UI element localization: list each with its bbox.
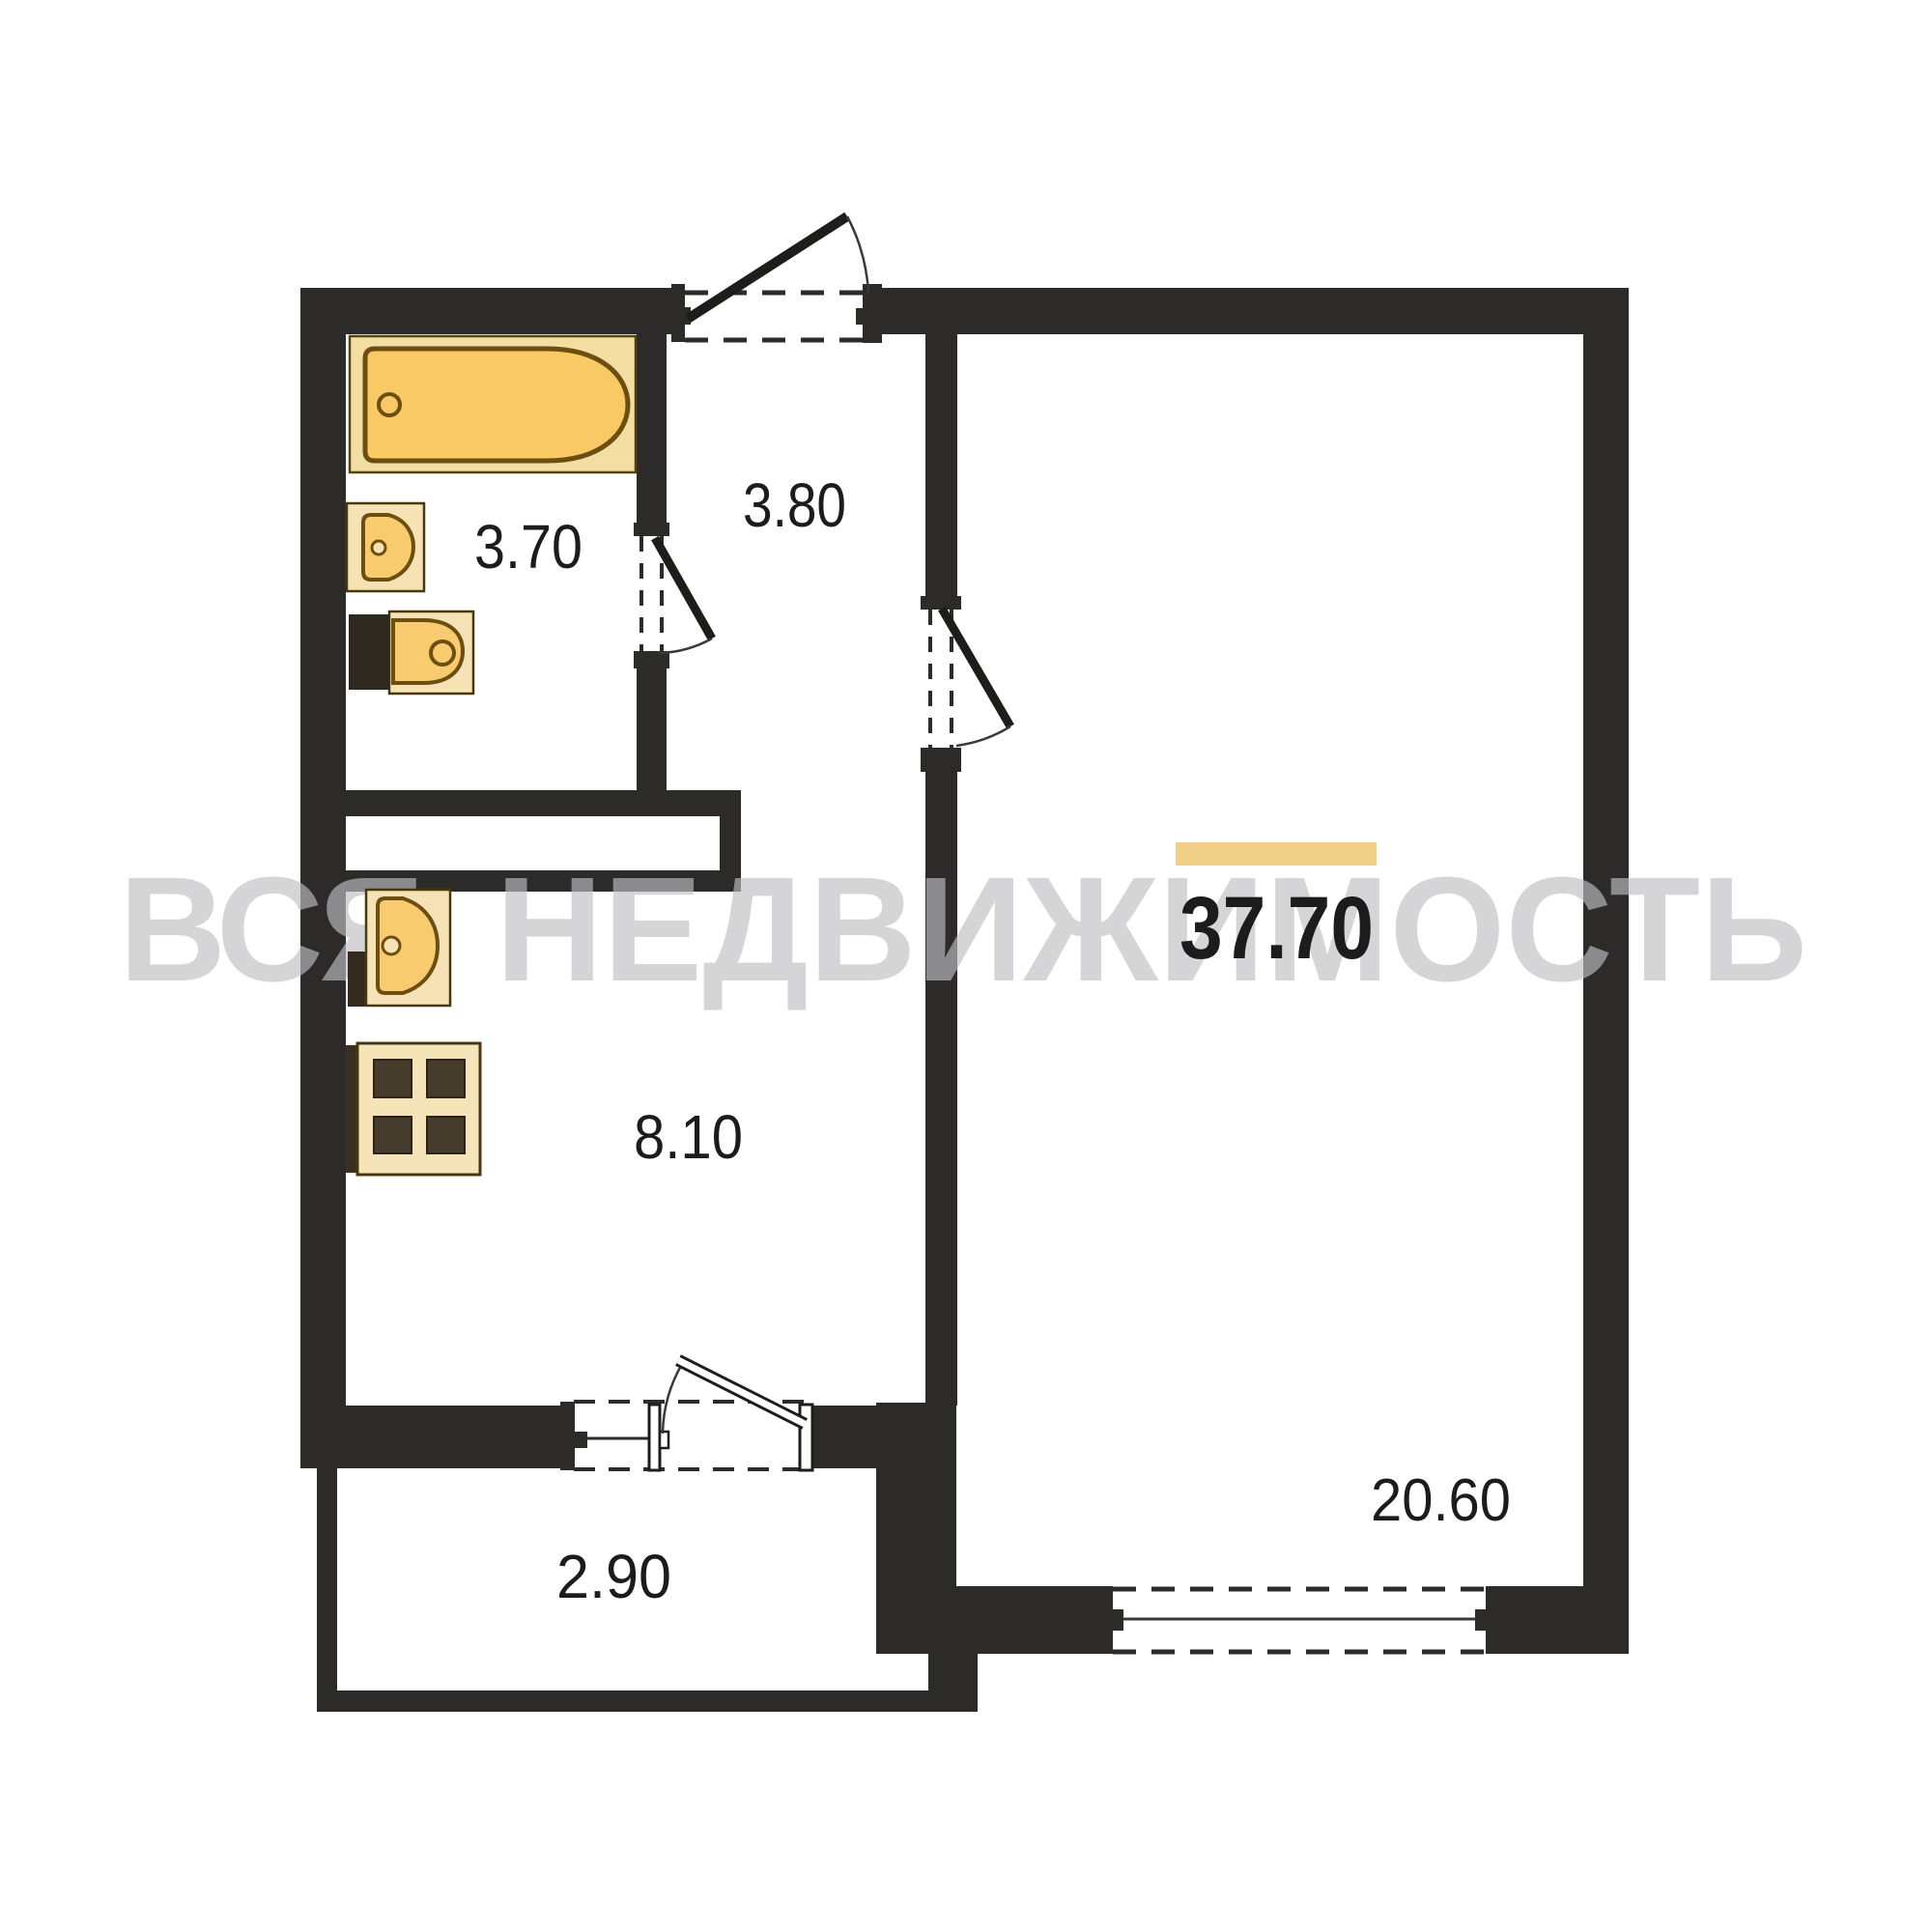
svg-text:3.70: 3.70 <box>474 512 582 582</box>
svg-text:20.60: 20.60 <box>1371 1467 1511 1534</box>
svg-text:НЕДВИЖИМОСТЬ: НЕДВИЖИМОСТЬ <box>496 846 1807 1012</box>
svg-text:2.90: 2.90 <box>556 1542 671 1611</box>
svg-text:8.10: 8.10 <box>634 1102 743 1172</box>
svg-text:37.70: 37.70 <box>1179 879 1374 978</box>
svg-text:3.80: 3.80 <box>743 470 846 540</box>
